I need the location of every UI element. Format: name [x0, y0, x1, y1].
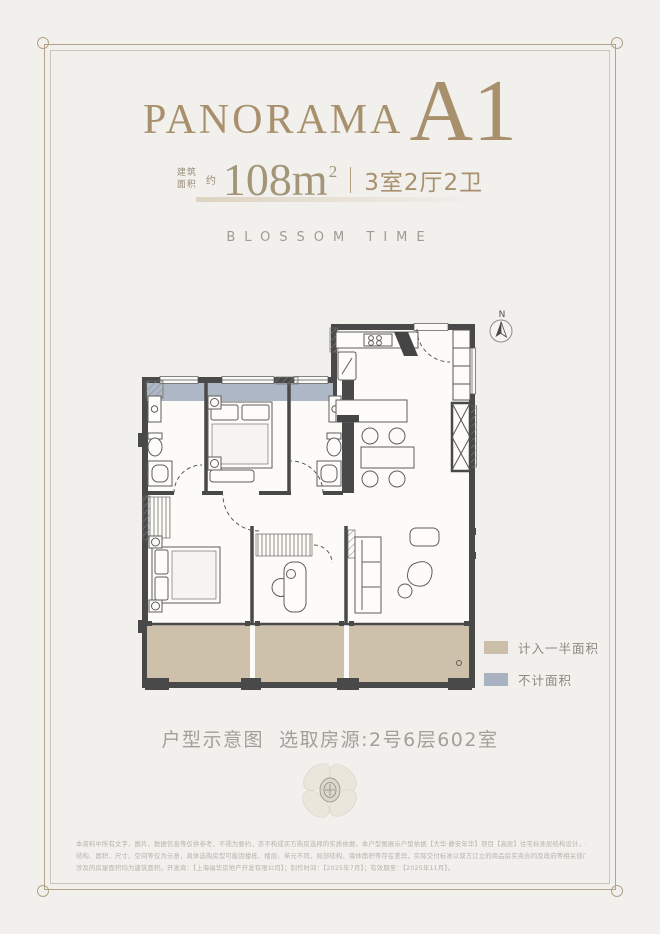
unit-name: A1	[409, 72, 517, 153]
title-row: PANORAMA A1	[0, 72, 660, 153]
disclaimer-line: 本资料中所有文字、图片、数据信息等仅供参考，不视为要约，亦不构成买方购房选择的实…	[76, 839, 586, 851]
frame-corner-loop	[37, 885, 49, 897]
bedroom-bottom	[149, 536, 220, 612]
floor-plan-svg: N	[124, 300, 520, 720]
subtitle: BLOSSOM TIME	[0, 230, 660, 245]
frame-corner-loop	[611, 37, 623, 49]
north-compass-icon: N	[490, 310, 512, 342]
area-exponent: 2	[329, 162, 338, 181]
room-layout: 3室2厅2卫	[364, 163, 483, 197]
area-label: 建筑 面积	[177, 168, 197, 191]
excluded-area-band	[147, 383, 333, 401]
disclaimer-line: 结构、面积、尺寸、空间等仅为示意，具体选购房型可能因楼栋、楼层、单元不同，局部结…	[76, 851, 586, 863]
legend: 计入一半面积 不计面积	[484, 638, 599, 702]
area-approx: 约	[206, 172, 216, 187]
balcony-half-area	[147, 625, 469, 682]
frame-corner-loop	[37, 37, 49, 49]
spec-divider	[350, 167, 351, 193]
floor-plan-area: N	[124, 300, 520, 720]
spec-row: 建筑 面积 约 108m2 3室2厅2卫	[0, 160, 660, 199]
half-area-swatch	[484, 641, 508, 654]
disclaimer: 本资料中所有文字、图片、数据信息等仅供参考，不视为要约，亦不构成买方购房选择的实…	[76, 839, 586, 874]
cabinet-and-shaft	[452, 330, 470, 471]
plan-caption: 户型示意图 选取房源:2号6层602室	[0, 725, 660, 752]
legend-item-excluded-area: 不计面积	[484, 670, 599, 689]
flower-emblem-icon	[295, 757, 365, 823]
disclaimer-line: 涉及的房屋面积均为建筑面积。开发商：【上海福华房地产开发有限公司】；制作时间：【…	[76, 863, 586, 875]
frame-corner-loop	[611, 885, 623, 897]
gold-gradient-divider	[196, 197, 462, 202]
excluded-area-swatch	[484, 673, 508, 686]
svg-text:N: N	[499, 310, 506, 320]
area-value: 108m2	[223, 160, 337, 199]
legend-item-half-area: 计入一半面积	[484, 638, 599, 657]
poster: PANORAMA A1 建筑 面积 约 108m2 3室2厅2卫 BLOSSOM…	[0, 0, 660, 934]
brand-title: PANORAMA	[143, 96, 404, 144]
